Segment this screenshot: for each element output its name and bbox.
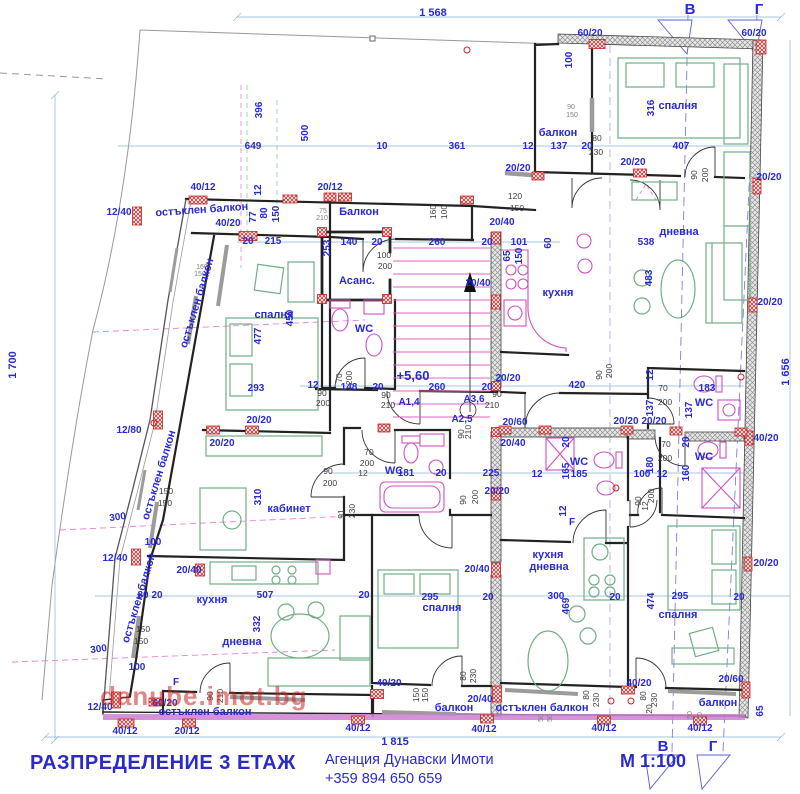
plan-label: 70 <box>661 439 671 449</box>
wall-section-stamp <box>735 428 747 436</box>
plan-label: 20 <box>481 382 493 393</box>
plan-label: 200 <box>360 458 374 468</box>
plan-label: 507 <box>257 590 274 601</box>
plan-label: 60/20 <box>577 28 602 39</box>
plan-label: 185 <box>571 469 588 480</box>
plan-label: 90 <box>317 388 327 398</box>
plan-label: 12/40 <box>102 553 127 564</box>
plan-label: 40/12 <box>190 182 215 193</box>
plan-label: 20/20 <box>505 163 530 174</box>
wall-section-stamp <box>383 228 392 237</box>
plan-label: кабинет <box>267 503 311 515</box>
plan-label: Балкон <box>339 206 379 218</box>
plan-label: спалня <box>659 609 698 621</box>
plan-label: 230 <box>591 693 601 707</box>
plan-label: 20/20 <box>756 172 781 183</box>
plan-label: 80 <box>581 690 591 700</box>
plan-label: 180 <box>645 456 656 473</box>
plan-label: Асанс. <box>339 275 375 287</box>
wall-section-stamp <box>461 196 474 204</box>
wall-section-stamp <box>670 427 682 435</box>
plan-label: 295 <box>672 591 689 602</box>
plan-label: 20/20 <box>641 416 666 427</box>
plan-label: 253 <box>322 239 333 256</box>
plan-label: 150 <box>158 498 172 508</box>
plan-label: спалня <box>659 100 698 112</box>
plan-label: 60/20 <box>741 28 766 39</box>
plan-label: 210 <box>485 400 499 410</box>
plan-label: 150 <box>420 688 430 702</box>
plan-label: 181 <box>398 468 415 479</box>
plan-label: 90 <box>323 466 333 476</box>
plan-label: 361 <box>449 141 466 152</box>
plan-label: 40/20 <box>753 433 778 444</box>
plan-label: 20/20 <box>495 373 520 384</box>
plan-label: 20 <box>481 237 493 248</box>
plan-label: 40/20 <box>376 678 401 689</box>
plan-label: 200 <box>700 168 710 182</box>
plan-label: 20/20 <box>246 415 271 426</box>
plan-label: 20/40 <box>464 564 489 575</box>
plan-label: 20/40 <box>465 278 490 289</box>
plan-label: 40/12 <box>471 724 496 735</box>
plan-label: 20/20 <box>209 438 234 449</box>
wall-section-stamp <box>492 295 501 309</box>
plan-label: 230 <box>468 669 478 683</box>
plan-label: 140 <box>341 237 358 248</box>
plan-label: 50 <box>547 714 554 722</box>
plan-label: остъклен балкон <box>495 702 588 714</box>
plan-label: 100 <box>145 537 162 548</box>
plan-label: 200 <box>344 371 354 385</box>
plan-label: 20/60 <box>502 417 527 428</box>
plan-label: 215 <box>265 236 282 247</box>
wall-section-stamp <box>492 563 501 577</box>
plan-label: 20/12 <box>174 726 199 737</box>
wall-section-stamp <box>378 424 390 432</box>
plan-label: 60 <box>543 237 554 249</box>
plan-label: 100 <box>439 205 449 219</box>
plan-label: 20/20 <box>757 297 782 308</box>
plan-label: 20/20 <box>484 486 509 497</box>
plan-label: 20 <box>435 468 447 479</box>
plan-label: 120 <box>508 191 522 201</box>
plan-label: 469 <box>561 597 572 614</box>
plan-label: 20/20 <box>613 416 638 427</box>
plan-label: 20/20 <box>620 157 645 168</box>
plan-label: 165 <box>561 462 572 479</box>
plan-label: 100 <box>129 662 146 673</box>
wall-section-stamp <box>189 196 207 204</box>
plan-label: 450 <box>285 309 296 326</box>
plan-label: 65 <box>502 250 513 262</box>
plan-label: 70 <box>334 373 344 383</box>
hinge-circle <box>464 47 470 53</box>
plan-label: 70 <box>658 383 668 393</box>
plan-label: 50 <box>687 711 694 719</box>
plan-label: A2,5 <box>451 414 473 425</box>
plan-label: WC <box>695 397 713 409</box>
plan-label: 20 <box>561 436 572 448</box>
plan-label: остъклен балкон <box>155 201 249 219</box>
wall-section-stamp <box>383 295 392 304</box>
plan-label: 316 <box>646 99 657 116</box>
plan-label: 90 <box>492 389 502 399</box>
wall-section-stamp <box>207 426 220 434</box>
plan-label: 12/80 <box>116 425 141 436</box>
fixtures <box>316 234 740 574</box>
agency-name: Агенция Дунавски Имоти <box>325 752 494 768</box>
plan-label: 20 <box>609 592 621 603</box>
plan-label: 80 <box>592 133 602 143</box>
wall-section-stamp <box>318 295 327 304</box>
hinge-circle <box>738 374 744 380</box>
hinge-circle <box>613 485 619 491</box>
plan-label: 75 <box>319 208 327 215</box>
plan-label: 200 <box>604 364 614 378</box>
plan-label: 20 <box>733 592 745 603</box>
plan-label: 20/60 <box>718 674 743 685</box>
wall-section-stamp <box>744 557 752 571</box>
plan-label: 200 <box>658 397 672 407</box>
plan-label: 101 <box>511 237 528 248</box>
plan-label: 150 <box>514 247 525 264</box>
plan-label: 300 <box>90 643 108 656</box>
plan-label: балкон <box>539 127 578 139</box>
plan-label: 200 <box>316 398 330 408</box>
plan-label: 12 <box>522 141 534 152</box>
wall-section-stamp <box>318 228 327 237</box>
plan-label: 200 <box>658 453 672 463</box>
plan-label: кухня <box>197 594 228 606</box>
plan-label: 20 <box>482 592 494 603</box>
plan-label: 80 <box>638 691 648 701</box>
plan-label: 20/20 <box>753 558 778 569</box>
plan-label: 20/12 <box>317 182 342 193</box>
wall-section-stamp <box>324 193 336 201</box>
plan-label: 12 <box>531 469 543 480</box>
plan-label: 230 <box>589 147 603 157</box>
plan-label: 12 <box>253 184 264 196</box>
plan-title: РАЗПРЕДЕЛЕНИЕ 3 ЕТАЖ <box>30 752 296 775</box>
plan-label: 12 <box>558 505 569 517</box>
plan-label: 483 <box>644 269 655 286</box>
wall-section-stamp <box>132 549 141 565</box>
plan-label: 100 <box>377 250 391 260</box>
plan-label: 20/40 <box>500 438 525 449</box>
plan-label: 225 <box>483 468 500 479</box>
plan-label: 150 <box>566 112 578 119</box>
plan-label: 150 <box>136 624 150 634</box>
plan-label: спалня <box>423 602 462 614</box>
wall-section-stamp <box>589 40 605 49</box>
plan-label: 12 <box>645 369 656 381</box>
plan-label: 20 <box>242 236 254 247</box>
plan-label: 100 <box>564 51 575 68</box>
plan-label: WC <box>355 323 373 335</box>
plan-label: 20/40 <box>176 565 201 576</box>
plan-label: 210 <box>316 215 328 222</box>
plan-label: 1 815 <box>381 736 409 748</box>
wall-section-stamp <box>371 690 384 699</box>
wall-section-stamp <box>621 426 633 434</box>
plan-label: 407 <box>673 141 690 152</box>
plan-label: 260 <box>429 237 446 248</box>
labels-layer: 1 568ВГ60/2060/201 7001 6563965006491036… <box>7 1 792 755</box>
plan-label: 50 <box>697 712 704 720</box>
plan-label: 77 <box>248 211 259 223</box>
plan-label: 40/12 <box>591 723 616 734</box>
plan-label: 1 568 <box>419 7 447 19</box>
plan-label: балкон <box>699 697 738 709</box>
plan-label: 20 <box>644 704 654 714</box>
wall-section-stamp <box>634 169 647 177</box>
plan-label: 65 <box>755 705 766 717</box>
plan-label: 80 <box>458 671 468 681</box>
plan-label: 210 <box>463 425 473 439</box>
plan-label: 230 <box>347 504 357 518</box>
plan-label: 150 <box>134 636 148 646</box>
plan-label: 90 <box>458 495 468 505</box>
plan-label: 12 <box>656 469 668 480</box>
plan-label: 137 <box>684 401 695 418</box>
plan-label: WC <box>570 456 588 468</box>
plan-label: 200 <box>646 489 656 503</box>
plan-label: дневна <box>529 561 569 573</box>
plan-label: 70 <box>364 447 374 457</box>
plan-label: F <box>569 517 575 528</box>
plan-label: 90 <box>381 390 391 400</box>
plan-label: 474 <box>646 592 657 609</box>
plan-label: 1 700 <box>7 351 19 379</box>
plan-label: 20 <box>151 590 163 601</box>
plan-label: 1 656 <box>780 358 792 386</box>
plan-label: 40/12 <box>687 723 712 734</box>
plan-label: В <box>685 1 696 18</box>
plan-label: A3,6 <box>463 394 485 405</box>
wall-section-stamp <box>749 298 757 312</box>
wall-section-stamp <box>493 686 502 702</box>
agency-phone: +359 894 650 659 <box>325 771 442 787</box>
plan-label: 137 <box>551 141 568 152</box>
floor-plan-page: 1 568ВГ60/2060/201 7001 6563965006491036… <box>0 0 800 794</box>
hinge-circle <box>608 698 614 704</box>
wall-section-stamp <box>246 426 259 434</box>
plan-label: 12/40 <box>106 207 131 218</box>
plan-label: 160 <box>428 205 438 219</box>
plan-label: 137 <box>645 399 656 416</box>
plan-label: A1,4 <box>398 397 420 408</box>
plan-label: 150 <box>271 205 282 222</box>
plan-label: 90 <box>594 370 604 380</box>
plan-label: 10 <box>376 141 388 152</box>
plan-label: 200 <box>470 490 480 504</box>
wall-section-stamp <box>339 193 352 201</box>
scale-label: М 1:100 <box>620 751 686 772</box>
plan-label: балкон <box>435 702 474 714</box>
plan-label: 12 <box>358 468 368 478</box>
plan-label: 260 <box>429 382 446 393</box>
plan-label: 477 <box>253 327 264 344</box>
watermark: danube.imot.bg <box>100 681 308 712</box>
plan-label: 40/12 <box>112 726 137 737</box>
plan-label: 40/20 <box>626 678 651 689</box>
plan-label: 20 <box>371 237 383 248</box>
hinge-circle <box>628 698 634 704</box>
plan-label: 293 <box>248 383 265 394</box>
plan-label: 649 <box>245 141 262 152</box>
wall-section-stamp <box>492 232 501 244</box>
wall-section-stamp <box>481 715 494 723</box>
wall-section-stamp <box>539 426 551 434</box>
wall-section-stamp <box>532 172 544 180</box>
plan-label: 332 <box>252 615 263 632</box>
plan-label: 160 <box>681 464 692 481</box>
plan-label: 200 <box>378 261 392 271</box>
plan-label: 40/20 <box>215 218 240 229</box>
plan-label: дневна <box>222 636 262 648</box>
plan-label: 396 <box>254 101 265 118</box>
wall-section-stamp <box>283 195 297 203</box>
plan-label: 80 <box>259 207 270 219</box>
plan-label: WC <box>695 451 713 463</box>
plan-label: 90 <box>689 170 699 180</box>
plan-label: 20/40 <box>489 217 514 228</box>
plan-label: 420 <box>569 380 586 391</box>
plan-label: 200 <box>323 478 337 488</box>
wall-section-stamp <box>133 207 142 225</box>
plan-label: 40/12 <box>345 723 370 734</box>
plan-label: кухня <box>533 549 564 561</box>
plan-label: 150 <box>510 203 524 213</box>
plan-label: 20 <box>358 590 370 601</box>
floor-plan-drawing: 1 568ВГ60/2060/201 7001 6563965006491036… <box>0 0 800 794</box>
plan-label: 538 <box>638 237 655 248</box>
plan-label: кухня <box>543 287 574 299</box>
plan-label: 20 <box>681 436 692 448</box>
plan-label: 50 <box>538 714 545 722</box>
plan-label: 183 <box>699 383 716 394</box>
plan-label: +5,60 <box>397 368 430 383</box>
plan-label: дневна <box>659 226 699 238</box>
plan-label: 500 <box>300 124 311 141</box>
plan-label: 12 <box>640 501 650 511</box>
plan-label: 91 <box>336 509 346 519</box>
plan-label: 90 <box>567 104 575 111</box>
plan-label: Г <box>755 1 764 18</box>
plan-label: 310 <box>253 488 264 505</box>
plan-label: 210 <box>381 400 395 410</box>
wall-section-stamp <box>756 40 766 54</box>
plan-label: Г <box>709 738 718 755</box>
